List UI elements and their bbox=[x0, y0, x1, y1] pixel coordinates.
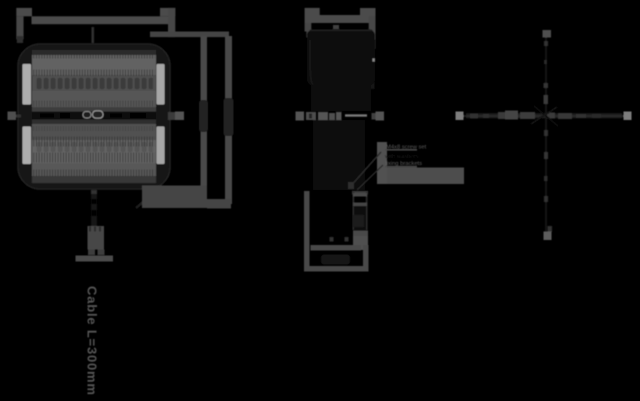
svg-text:Cable L=300mm: Cable L=300mm bbox=[85, 286, 100, 396]
svg-text:with washers: with washers bbox=[384, 154, 419, 160]
